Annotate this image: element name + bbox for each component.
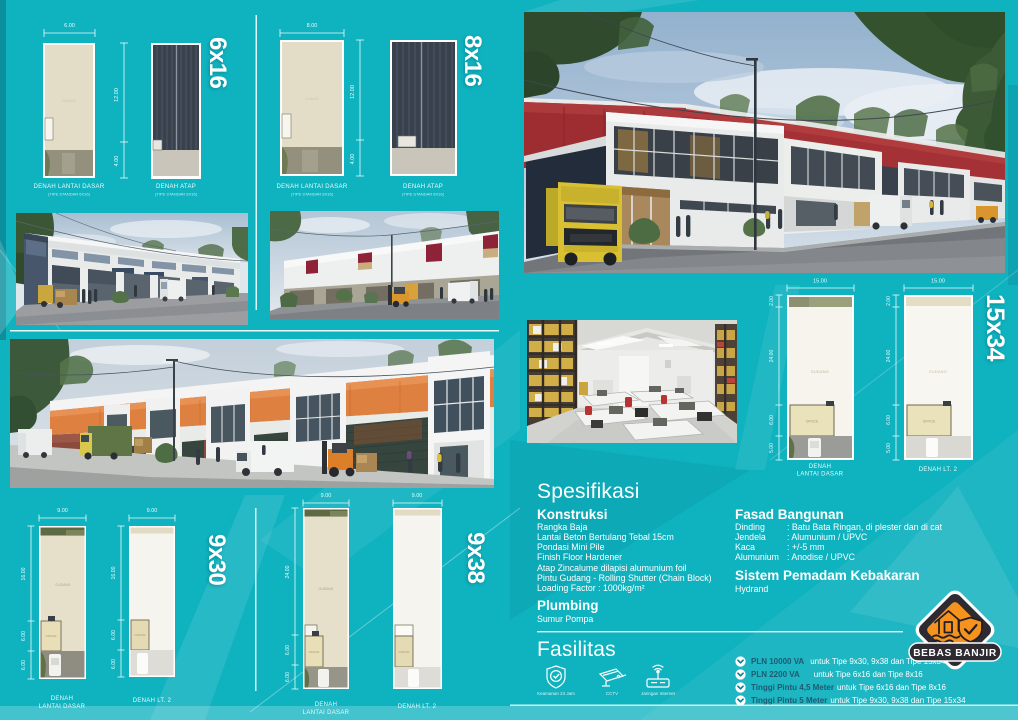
svg-text:DENAH ATAP: DENAH ATAP bbox=[403, 184, 443, 190]
svg-text:4.00: 4.00 bbox=[350, 154, 356, 165]
svg-text:24.00: 24.00 bbox=[769, 350, 775, 363]
svg-text:6.00: 6.00 bbox=[64, 23, 75, 29]
svg-text:(TIPE STANDAR 8X16): (TIPE STANDAR 8X16) bbox=[291, 192, 334, 197]
svg-text:12.00: 12.00 bbox=[114, 88, 120, 102]
svg-text:LANTAI DASAR: LANTAI DASAR bbox=[303, 710, 350, 716]
svg-text:2.00: 2.00 bbox=[769, 296, 775, 306]
svg-text:DENAH: DENAH bbox=[51, 696, 74, 702]
svg-text:(TIPE STANDAR 8X16): (TIPE STANDAR 8X16) bbox=[402, 192, 445, 197]
svg-text:OFFICE: OFFICE bbox=[309, 650, 320, 654]
svg-text:12.00: 12.00 bbox=[350, 85, 356, 99]
svg-text:DENAH LANTAI DASAR: DENAH LANTAI DASAR bbox=[34, 184, 105, 190]
svg-text:LANTAI DASAR: LANTAI DASAR bbox=[797, 472, 844, 478]
svg-text:DENAH LT. 2: DENAH LT. 2 bbox=[133, 698, 172, 704]
svg-text:16.00: 16.00 bbox=[111, 566, 117, 579]
svg-text:OFFICE: OFFICE bbox=[46, 634, 57, 638]
svg-text:6.00: 6.00 bbox=[886, 415, 892, 425]
svg-text:9.00: 9.00 bbox=[57, 508, 68, 514]
svg-text:8.00: 8.00 bbox=[307, 23, 318, 29]
svg-text:GUDANG: GUDANG bbox=[62, 99, 77, 103]
svg-text:2.00: 2.00 bbox=[886, 296, 892, 306]
svg-text:9.00: 9.00 bbox=[412, 493, 423, 499]
svg-text:9.00: 9.00 bbox=[321, 493, 332, 499]
svg-text:5.00: 5.00 bbox=[886, 443, 892, 453]
svg-text:6.00: 6.00 bbox=[285, 645, 291, 655]
svg-text:DENAH LT. 2: DENAH LT. 2 bbox=[398, 704, 437, 710]
svg-text:GUDANG: GUDANG bbox=[319, 587, 334, 591]
svg-text:6.00: 6.00 bbox=[111, 630, 117, 640]
svg-text:24.00: 24.00 bbox=[285, 565, 291, 578]
svg-text:OFFICE: OFFICE bbox=[135, 633, 146, 637]
svg-text:6.00: 6.00 bbox=[21, 660, 27, 670]
svg-text:6.00: 6.00 bbox=[285, 672, 291, 682]
svg-text:4.00: 4.00 bbox=[114, 156, 120, 167]
svg-text:(TIPE STANDAR 6X16): (TIPE STANDAR 6X16) bbox=[48, 192, 91, 197]
svg-text:OFFICE: OFFICE bbox=[399, 650, 410, 654]
svg-text:5.00: 5.00 bbox=[769, 443, 775, 453]
svg-text:GUDANG: GUDANG bbox=[811, 370, 829, 374]
svg-text:6.00: 6.00 bbox=[111, 659, 117, 669]
svg-text:OFFICE: OFFICE bbox=[806, 420, 819, 424]
svg-text:GUDANG: GUDANG bbox=[929, 370, 947, 374]
svg-text:BEBAS BANJIR: BEBAS BANJIR bbox=[913, 648, 997, 659]
svg-text:(TIPE STANDAR 6X16): (TIPE STANDAR 6X16) bbox=[155, 192, 198, 197]
svg-text:GUDANG: GUDANG bbox=[56, 583, 71, 587]
svg-text:OFFICE: OFFICE bbox=[923, 420, 936, 424]
svg-text:6.00: 6.00 bbox=[21, 631, 27, 641]
svg-text:15.00: 15.00 bbox=[931, 279, 945, 285]
svg-text:16.00: 16.00 bbox=[21, 567, 27, 580]
svg-text:DENAH: DENAH bbox=[809, 464, 832, 470]
svg-text:9.00: 9.00 bbox=[147, 508, 158, 514]
svg-text:24.00: 24.00 bbox=[886, 350, 892, 363]
svg-text:6.00: 6.00 bbox=[769, 415, 775, 425]
svg-text:DENAH: DENAH bbox=[315, 702, 338, 708]
svg-text:DENAH LT. 2: DENAH LT. 2 bbox=[919, 467, 958, 473]
svg-text:GUDANG: GUDANG bbox=[305, 97, 320, 101]
svg-text:DENAH LANTAI DASAR: DENAH LANTAI DASAR bbox=[277, 184, 348, 190]
svg-text:LANTAI DASAR: LANTAI DASAR bbox=[39, 704, 86, 710]
svg-text:DENAH ATAP: DENAH ATAP bbox=[156, 184, 196, 190]
svg-text:15.00: 15.00 bbox=[813, 279, 827, 285]
